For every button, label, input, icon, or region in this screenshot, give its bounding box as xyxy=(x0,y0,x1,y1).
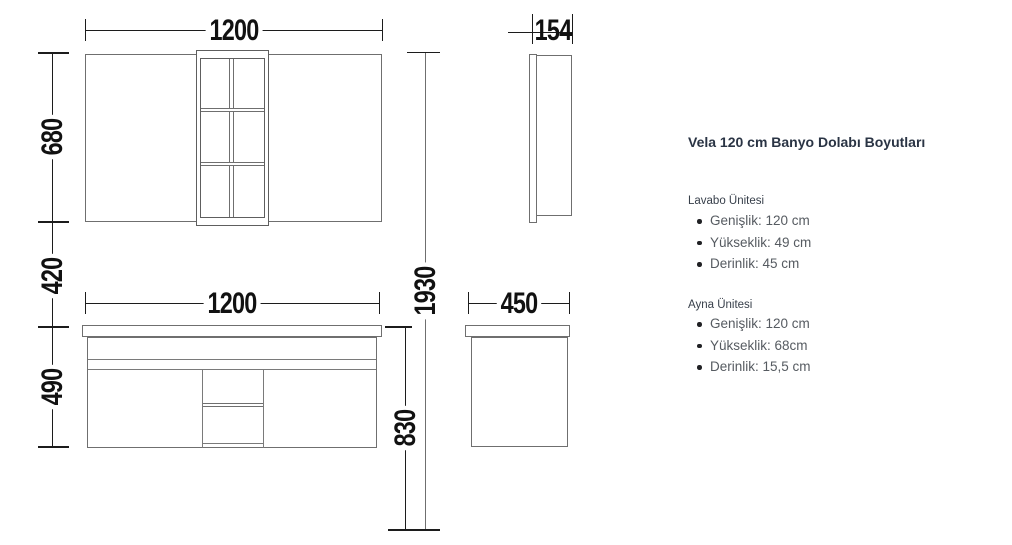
mirror-shelf-row-divider-1 xyxy=(201,108,264,112)
list-item: Derinlik: 45 cm xyxy=(688,253,811,275)
dim-tick xyxy=(38,221,69,223)
dim-tick xyxy=(569,292,570,314)
vanity-drawer-bottom-line xyxy=(203,443,263,444)
bullet-icon xyxy=(697,322,702,327)
list-item: Yükseklik: 68cm xyxy=(688,335,811,357)
bullet-icon xyxy=(697,219,702,224)
dim-tick-floor xyxy=(388,529,440,531)
vanity-front-body xyxy=(87,337,377,448)
dim-tick xyxy=(85,292,86,314)
vanity-drawer-stack-right-edge xyxy=(263,370,264,448)
bullet-icon xyxy=(697,344,702,349)
dim-tick xyxy=(85,19,86,41)
dim-tick xyxy=(532,14,533,44)
spec-text: Yükseklik: 49 cm xyxy=(710,235,811,250)
dim-tick xyxy=(385,326,412,328)
spec-text: Derinlik: 45 cm xyxy=(710,256,799,271)
section-heading-ayna: Ayna Ünitesi xyxy=(688,299,752,311)
section-heading-lavabo: Lavabo Ünitesi xyxy=(688,195,764,207)
dim-tick xyxy=(382,19,383,41)
list-item: Genişlik: 120 cm xyxy=(688,313,811,335)
vanity-front-apron-line-1 xyxy=(88,359,376,360)
ayna-spec-list: Genişlik: 120 cm Yükseklik: 68cm Derinli… xyxy=(688,313,811,378)
technical-drawing-page: 1200 154 680 420 490 1200 450 1930 830 V… xyxy=(0,0,1012,545)
dim-label-mirror-height: 680 xyxy=(38,115,68,160)
page-title: Vela 120 cm Banyo Dolabı Boyutları xyxy=(688,134,925,150)
dim-tick xyxy=(38,446,69,448)
vanity-front-apron-line-2 xyxy=(88,369,376,370)
dim-tick xyxy=(38,52,69,54)
bullet-icon xyxy=(697,241,702,246)
mirror-side-body xyxy=(536,55,572,216)
list-item: Derinlik: 15,5 cm xyxy=(688,356,811,378)
dim-tick xyxy=(468,292,469,314)
dim-label-vanity-depth: 450 xyxy=(497,289,542,319)
vanity-side-body xyxy=(471,337,568,447)
spec-text: Genişlik: 120 cm xyxy=(710,316,810,331)
dim-label-total-height: 1930 xyxy=(411,263,441,320)
dim-label-wall-gap: 420 xyxy=(38,254,68,299)
list-item: Genişlik: 120 cm xyxy=(688,210,811,232)
dim-label-vanity-width: 1200 xyxy=(204,289,261,319)
lavabo-spec-list: Genişlik: 120 cm Yükseklik: 49 cm Derinl… xyxy=(688,210,811,275)
dim-tick xyxy=(379,292,380,314)
dim-label-mirror-depth: 154 xyxy=(535,16,572,46)
spec-text: Genişlik: 120 cm xyxy=(710,213,810,228)
dim-tick xyxy=(407,52,440,53)
spec-text: Yükseklik: 68cm xyxy=(710,338,808,353)
dim-tick xyxy=(572,14,573,44)
dim-label-vanity-height: 490 xyxy=(38,365,68,410)
list-item: Yükseklik: 49 cm xyxy=(688,232,811,254)
dim-tick xyxy=(38,326,69,328)
bullet-icon xyxy=(697,262,702,267)
mirror-shelf-row-divider-2 xyxy=(201,162,264,166)
vanity-drawer-stack-left-edge xyxy=(202,370,203,448)
vanity-drawer-divider xyxy=(203,403,263,407)
bullet-icon xyxy=(697,365,702,370)
dim-label-vanity-top-height: 830 xyxy=(391,406,421,451)
spec-text: Derinlik: 15,5 cm xyxy=(710,359,811,374)
dim-label-mirror-width: 1200 xyxy=(206,16,263,46)
mirror-shelf-center-divider xyxy=(229,59,234,217)
vanity-side-countertop xyxy=(465,325,570,337)
vanity-front-countertop xyxy=(82,325,382,337)
